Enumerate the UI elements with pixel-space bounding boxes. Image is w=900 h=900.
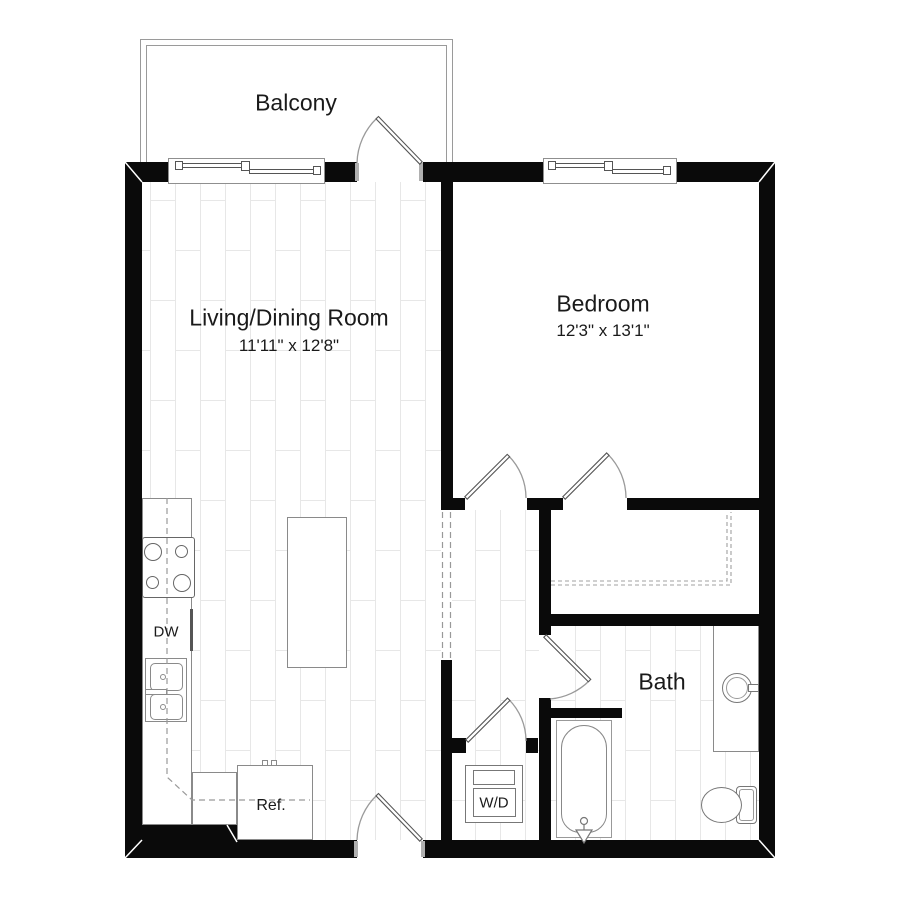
entry-door-arc bbox=[357, 795, 377, 840]
bedroom-dimensions: 12'3" x 13'1" bbox=[556, 321, 649, 341]
closet-shelf bbox=[551, 512, 731, 585]
balcony-label: Balcony bbox=[255, 90, 337, 117]
entry-door-leaf bbox=[376, 794, 422, 842]
living-room-dimensions: 11'11" x 12'8" bbox=[239, 336, 339, 356]
symbols-overlay bbox=[0, 0, 900, 900]
closet-door-arc bbox=[608, 454, 626, 498]
closet-door-leaf bbox=[563, 453, 609, 499]
bedroom-door-leaf bbox=[465, 454, 510, 499]
bath-door-leaf bbox=[544, 635, 591, 682]
tub-faucet-icon bbox=[581, 818, 588, 825]
living-room-label: Living/Dining Room bbox=[189, 305, 388, 332]
cabinet-dashed-line bbox=[167, 498, 310, 800]
bedroom-door-arc bbox=[508, 456, 526, 498]
bedroom-label: Bedroom bbox=[556, 291, 649, 318]
tub-drain-triangle bbox=[576, 830, 592, 843]
floor-plan: Balcony Living/Dining Room 11'11" x 12'8… bbox=[0, 0, 900, 900]
laundry-door-leaf bbox=[466, 698, 510, 742]
hall-opening-dashes bbox=[443, 512, 451, 658]
laundry-door-arc bbox=[509, 699, 526, 741]
dishwasher-label: DW bbox=[154, 624, 179, 641]
bath-label: Bath bbox=[638, 669, 685, 696]
balcony-door-leaf bbox=[376, 117, 422, 165]
refrigerator-label: Ref. bbox=[256, 797, 285, 815]
washer-dryer-label: W/D bbox=[479, 795, 508, 812]
balcony-door-arc bbox=[357, 118, 377, 163]
bath-door-arc bbox=[550, 681, 590, 700]
wall-miter-joints bbox=[125, 162, 775, 858]
